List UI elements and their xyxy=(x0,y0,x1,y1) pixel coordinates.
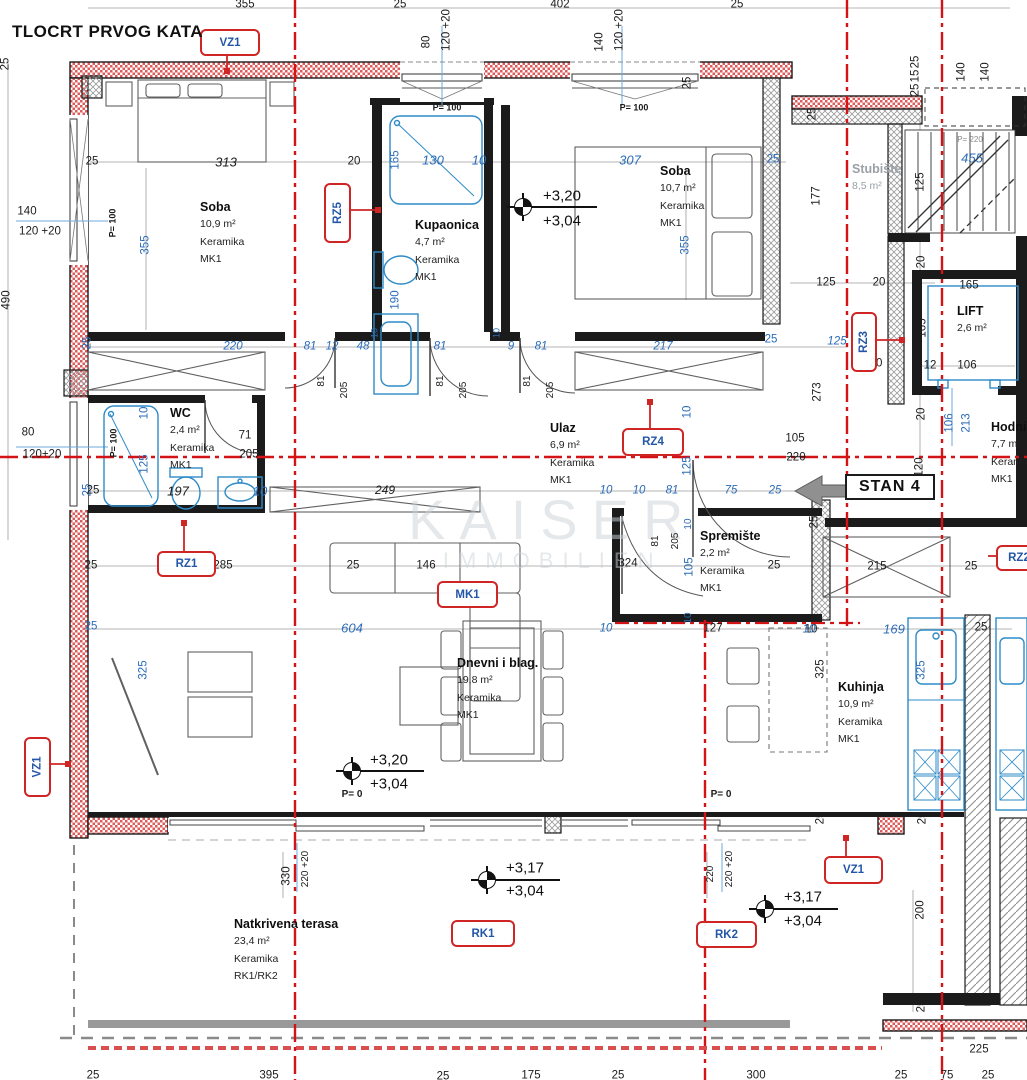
dimension-label: 10 xyxy=(600,485,613,497)
dimension-label: 140 xyxy=(594,32,606,51)
elevation-value: +3,17 xyxy=(784,889,822,906)
dimension-label: 10 xyxy=(493,328,502,338)
dimension-label: 165 xyxy=(917,318,929,337)
room-area: 8,5 m² xyxy=(852,181,901,192)
room-area: 23,4 m² xyxy=(234,936,338,947)
dimension-label: P= 100 xyxy=(110,429,119,458)
dimension-label: 25 xyxy=(437,1071,450,1080)
dimension-label: 10 xyxy=(600,623,613,635)
dimension-label: 177 xyxy=(811,186,823,205)
dimension-label: 81 xyxy=(436,375,446,386)
dimension-label: 225 xyxy=(969,1044,988,1056)
dimension-label: 169 xyxy=(883,623,905,636)
dimension-label: 402 xyxy=(550,0,569,11)
room-label: Soba10,9 m²KeramikaMK1 xyxy=(200,200,244,272)
dimension-label: 285 xyxy=(213,560,232,572)
dimension-label: 12 xyxy=(326,341,339,353)
dimension-label: 75 xyxy=(725,485,738,497)
dimension-label: 25 xyxy=(86,156,99,168)
room-area: 2,4 m² xyxy=(170,425,214,436)
dimension-label: 10 xyxy=(682,406,694,419)
room-label: Hodnik7,7 m²KeramikaMK1 xyxy=(991,420,1027,492)
axis-tag-label: RZ2 xyxy=(1008,552,1027,564)
dimension-label: 205 xyxy=(546,382,556,399)
room-label: Natkrivena terasa23,4 m²KeramikaRK1/RK2 xyxy=(234,917,338,989)
room-label: Ulaz6,9 m²KeramikaMK1 xyxy=(550,421,594,493)
dimension-label: 48 xyxy=(357,341,370,353)
dimension-label: 140 xyxy=(17,206,36,218)
room-material: Keramika xyxy=(170,443,214,454)
axis-tag-label: RZ1 xyxy=(176,558,198,570)
room-name: Natkrivena terasa xyxy=(234,917,338,931)
dimension-label: 455 xyxy=(961,152,983,165)
dimension-label: 81 xyxy=(535,341,548,353)
dimension-label: 25 xyxy=(0,58,12,71)
dimension-label: 125 xyxy=(915,172,927,191)
room-name: WC xyxy=(170,406,214,420)
axis-tag-mk1: MK1 xyxy=(437,581,498,608)
dimension-label: 355 xyxy=(235,0,254,11)
dimension-label: 604 xyxy=(341,622,363,635)
dimension-label: 300 xyxy=(746,1070,765,1080)
dimension-label: 25 xyxy=(85,560,98,572)
dimension-label: 10 xyxy=(253,485,267,498)
room-material: Keramika xyxy=(700,566,760,577)
dimension-label: P= 220 xyxy=(957,136,983,144)
room-area: 2,6 m² xyxy=(957,323,987,334)
dimension-label: 125 xyxy=(682,456,694,475)
apartment-badge: STAN 4 xyxy=(845,474,935,500)
dimension-label: 220 xyxy=(706,866,716,883)
axis-tag-rz4: RZ4 xyxy=(622,428,684,456)
dimension-label: 25 xyxy=(965,561,978,573)
room-code: MK1 xyxy=(838,734,884,745)
elevation-value: +3,17 xyxy=(506,860,544,877)
dimension-label: 127 xyxy=(703,623,722,635)
dimension-label: P= 100 xyxy=(109,209,118,238)
dimension-label: 325 xyxy=(138,660,150,679)
dimension-label: 25 xyxy=(768,560,781,572)
axis-tag-label: VZ1 xyxy=(843,864,864,876)
elevation-value: +3,04 xyxy=(370,776,408,793)
dimension-label: 25 xyxy=(815,812,827,825)
room-name: Spremište xyxy=(700,529,760,543)
room-code: RK1/RK2 xyxy=(234,971,338,982)
dimension-label: 215 xyxy=(867,561,886,573)
axis-tag-rz2: RZ2 xyxy=(996,545,1027,571)
elevation-value: +3,20 xyxy=(543,188,581,205)
room-material: Keramika xyxy=(457,693,538,704)
dimension-label: 105 xyxy=(684,557,696,576)
page-title: TLOCRT PRVOG KATA xyxy=(12,22,203,42)
dimension-label: 75 xyxy=(941,1070,954,1080)
dimension-label: 81 xyxy=(523,375,533,386)
room-label: Kupaonica4,7 m²KeramikaMK1 xyxy=(415,218,479,290)
dimension-label: P= 0 xyxy=(711,790,732,800)
dimension-label: 325 xyxy=(815,659,827,678)
room-name: Soba xyxy=(200,200,244,214)
dimension-label: 307 xyxy=(619,154,641,167)
room-code: MK1 xyxy=(200,254,244,265)
dimension-label: 25 xyxy=(982,1070,995,1080)
room-name: Dnevni i blag. xyxy=(457,656,538,670)
dimension-label: 220 xyxy=(786,452,805,464)
dimension-label: 10 xyxy=(472,154,486,167)
dimension-label: P= 100 xyxy=(620,104,649,113)
dimension-label: 25 xyxy=(394,0,407,11)
room-label: LIFT2,6 m² xyxy=(957,304,987,341)
axis-tag-vz1: VZ1 xyxy=(24,737,51,797)
room-code: MK1 xyxy=(550,475,594,486)
dimension-label: 200 xyxy=(915,900,927,919)
axis-tag-label: MK1 xyxy=(455,589,479,601)
room-area: 10,9 m² xyxy=(200,219,244,230)
room-material: Keramika xyxy=(991,457,1027,468)
dimension-label: 10 xyxy=(684,612,694,623)
dimension-label: 355 xyxy=(680,235,692,254)
axis-tag-label: VZ1 xyxy=(219,37,240,49)
elevation-symbol xyxy=(756,900,774,918)
dimension-label: 10 xyxy=(803,624,816,636)
dimension-label: 220 +20 xyxy=(725,851,735,887)
dimension-label: 330 xyxy=(281,866,293,885)
dimension-label: 25 xyxy=(895,1070,908,1080)
dimension-label: 25 xyxy=(807,108,819,121)
room-area: 6,9 m² xyxy=(550,440,594,451)
room-name: Ulaz xyxy=(550,421,594,435)
room-material: Keramika xyxy=(550,458,594,469)
room-label: Kuhinja10,9 m²KeramikaMK1 xyxy=(838,680,884,752)
dimension-label: 175 xyxy=(521,1070,540,1080)
room-material: Keramika xyxy=(234,954,338,965)
dimension-label: 220 +20 xyxy=(301,851,311,887)
room-material: Keramika xyxy=(660,201,704,212)
dimension-label: 105 xyxy=(785,433,804,445)
dimension-label: 81 xyxy=(666,485,679,497)
coffee-table xyxy=(400,667,458,725)
dimension-label: 249 xyxy=(375,484,395,496)
dimension-label: 25 xyxy=(917,812,929,825)
axis-tag-label: RZ3 xyxy=(858,331,870,353)
dimension-label: 81 xyxy=(651,535,661,546)
room-area: 19,8 m² xyxy=(457,675,538,686)
dimension-label: 25 xyxy=(975,622,988,634)
dimension-label: 81 xyxy=(317,375,327,386)
dimension-label: 25 xyxy=(87,485,100,497)
dimension-label: P= 0 xyxy=(342,790,363,800)
room-area: 2,2 m² xyxy=(700,548,760,559)
dimension-label: 15 xyxy=(910,70,922,83)
axis-tag-label: RK2 xyxy=(715,929,738,941)
dimension-label: 10 xyxy=(684,518,694,529)
dimension-label: 165 xyxy=(390,150,402,169)
room-material: Keramika xyxy=(415,255,479,266)
axis-tag-rz3: RZ3 xyxy=(851,312,877,372)
axis-tag-rz5: RZ5 xyxy=(324,183,351,243)
dimension-label: 165 xyxy=(959,280,978,292)
room-name: Stubište xyxy=(852,162,901,176)
armchair xyxy=(188,697,252,737)
dimension-label: 25 xyxy=(347,560,360,572)
dimension-label: 324 xyxy=(618,558,637,570)
room-material: Keramika xyxy=(838,717,884,728)
room-name: LIFT xyxy=(957,304,987,318)
elevation-value: +3,04 xyxy=(506,883,544,900)
dimension-label: 220 xyxy=(223,341,242,353)
room-area: 4,7 m² xyxy=(415,237,479,248)
tv xyxy=(112,658,158,775)
dimension-label: 9 xyxy=(508,341,514,353)
dimension-label: 490 xyxy=(1,290,13,309)
dimension-label: 125 xyxy=(816,277,835,289)
dimension-label: 25 xyxy=(809,516,821,529)
elevation-symbol xyxy=(478,871,496,889)
dimension-label: 355 xyxy=(140,235,152,254)
room-name: Soba xyxy=(660,164,704,178)
floorplan-page: KAISER IMMOBILIEN TLOCRT PRVOG KATA STAN… xyxy=(0,0,1027,1080)
axis-tag-label: RZ4 xyxy=(642,436,664,448)
dimension-label: 125 xyxy=(827,336,846,348)
bed xyxy=(138,80,266,162)
dimension-label: 146 xyxy=(416,560,435,572)
dimension-label: 80 xyxy=(421,36,433,49)
elevation-symbol xyxy=(514,198,532,216)
dimension-label: 205 xyxy=(340,382,350,399)
room-code: MK1 xyxy=(991,474,1027,485)
dimension-label: 273 xyxy=(812,382,824,401)
room-code: MK1 xyxy=(457,710,538,721)
room-material: Keramika xyxy=(200,237,244,248)
dimension-label: 25 xyxy=(910,84,922,97)
dimension-label: 106 xyxy=(957,360,976,372)
axis-tag-rk1: RK1 xyxy=(451,920,515,947)
dimension-label: 25 xyxy=(910,56,922,69)
dimension-label: 25 xyxy=(767,154,780,166)
dimension-label: 10 xyxy=(371,328,380,338)
dimension-label: 106 xyxy=(944,413,956,432)
dimension-label: 140 xyxy=(956,62,968,81)
dimension-label: 213 xyxy=(961,413,973,432)
dimension-label: 120+20 xyxy=(23,449,62,461)
room-name: Kuhinja xyxy=(838,680,884,694)
dimension-label: 20 xyxy=(873,277,886,289)
room-label: Spremište2,2 m²KeramikaMK1 xyxy=(700,529,760,601)
room-area: 10,7 m² xyxy=(660,183,704,194)
dimension-label: 313 xyxy=(215,156,237,169)
axis-tag-rz1: RZ1 xyxy=(157,551,216,577)
dimension-label: 205 xyxy=(239,449,258,461)
dimension-label: 120 +20 xyxy=(441,9,453,51)
dimension-label: 140 xyxy=(980,62,992,81)
axis-tag-label: VZ1 xyxy=(32,756,44,777)
dimension-label: 25 xyxy=(765,334,778,346)
elevation-value: +3,04 xyxy=(784,913,822,930)
axis-tag-vz1: VZ1 xyxy=(200,29,260,56)
elevation-symbol xyxy=(343,762,361,780)
room-name: Hodnik xyxy=(991,420,1027,434)
axis-tag-label: RK1 xyxy=(471,928,494,940)
room-code: MK1 xyxy=(170,460,214,471)
dimension-label: 10 xyxy=(139,407,151,420)
room-area: 10,9 m² xyxy=(838,699,884,710)
dimension-label: 25 xyxy=(769,485,782,497)
dimension-label: P= 100 xyxy=(433,104,462,113)
dimension-label: 10 xyxy=(633,485,646,497)
armchair xyxy=(188,652,252,692)
dimension-label: 81 xyxy=(434,341,447,353)
room-code: MK1 xyxy=(660,218,704,229)
elevation-value: +3,04 xyxy=(543,213,581,230)
dimension-label: 120 +20 xyxy=(19,226,61,238)
room-code: MK1 xyxy=(700,583,760,594)
elevation-value: +3,20 xyxy=(370,752,408,769)
dimension-label: 217 xyxy=(653,341,672,353)
room-label: Stubište8,5 m² xyxy=(852,162,901,199)
dimension-label: 20 xyxy=(348,156,361,168)
room-label: Soba10,7 m²KeramikaMK1 xyxy=(660,164,704,236)
dimension-label: 205 xyxy=(671,533,681,550)
dimension-label: 25 xyxy=(612,1070,625,1080)
dimension-label: 190 xyxy=(390,290,402,309)
dimension-label: 25 xyxy=(682,77,694,90)
dimension-label: 205 xyxy=(459,382,469,399)
dimension-label: 325 xyxy=(916,660,928,679)
axis-tag-label: RZ5 xyxy=(331,202,343,224)
dimension-label: 80 xyxy=(22,427,35,439)
dimension-label: 120 +20 xyxy=(614,9,626,51)
dimension-label: 25 xyxy=(916,1000,928,1013)
dimension-label: 25 xyxy=(731,0,744,11)
dimension-label: 395 xyxy=(259,1070,278,1080)
dimension-label: 125 xyxy=(139,454,151,473)
dimension-label: 25 xyxy=(85,621,98,633)
room-name: Kupaonica xyxy=(415,218,479,232)
axis-tag-vz1: VZ1 xyxy=(824,856,883,884)
room-area: 7,7 m² xyxy=(991,439,1027,450)
entrance-arrow xyxy=(795,476,848,506)
dimension-label: 81 xyxy=(304,341,317,353)
dimension-label: 25 xyxy=(82,337,94,350)
dimension-label: 12 xyxy=(924,360,937,372)
room-label: Dnevni i blag.19,8 m²KeramikaMK1 xyxy=(457,656,538,728)
dimension-label: 71 xyxy=(239,430,252,442)
dimension-label: 20 xyxy=(916,408,928,421)
dimension-label: 25 xyxy=(87,1070,100,1080)
dimension-label: 20 xyxy=(916,256,928,269)
room-code: MK1 xyxy=(415,272,479,283)
room-label: WC2,4 m²KeramikaMK1 xyxy=(170,406,214,478)
dimension-label: 130 xyxy=(422,154,444,167)
axis-tag-rk2: RK2 xyxy=(696,921,757,948)
dimension-label: 197 xyxy=(167,485,189,498)
